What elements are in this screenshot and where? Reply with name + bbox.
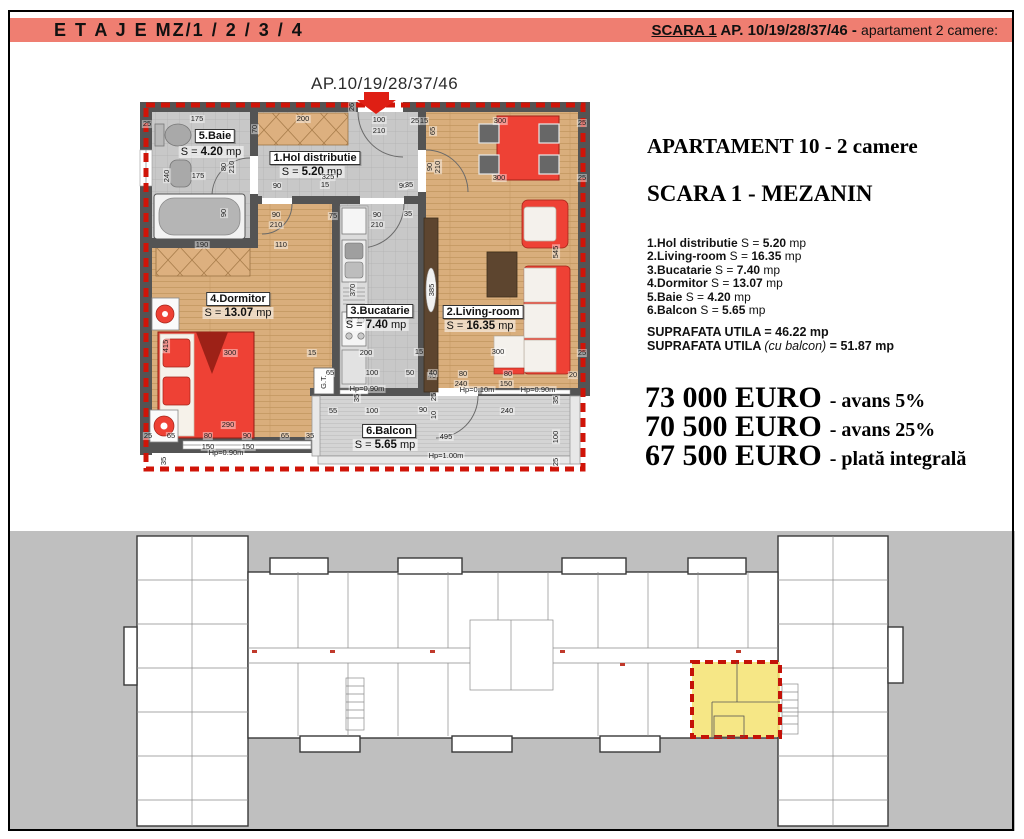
site-plan-drawing <box>9 531 1015 831</box>
dimension-label: 55 <box>328 407 338 415</box>
header-bar: E T A J E MZ/1 / 2 / 3 / 4 SCARA 1 AP. 1… <box>10 18 1012 42</box>
header-right-title: SCARA 1 AP. 10/19/28/37/46 - apartament … <box>651 22 998 39</box>
price-note: - avans 5% <box>830 390 926 413</box>
room-label: 3.Bucatarie <box>346 304 413 318</box>
surface-total: SUPRAFATA UTILA (cu balcon) = 51.87 mp <box>647 339 1005 353</box>
dimension-label: 80 <box>203 432 213 440</box>
brochure-page: E T A J E MZ/1 / 2 / 3 / 4 SCARA 1 AP. 1… <box>0 0 1024 839</box>
dimension-label: 200 <box>359 349 374 357</box>
price-note: - plată integrală <box>830 448 967 471</box>
apartment-title: APARTAMENT 10 - 2 camere <box>647 134 1005 159</box>
header-left-title: E T A J E MZ/1 / 2 / 3 / 4 <box>54 20 304 41</box>
dimension-label: 50 <box>405 369 415 377</box>
dimension-label: 300 <box>492 174 507 182</box>
price-row: 67 500 EURO- plată integrală <box>645 439 1005 468</box>
surface-totals: SUPRAFATA UTILA = 46.22 mpSUPRAFATA UTIL… <box>647 325 1005 353</box>
highlighted-apartment <box>692 662 780 737</box>
dimension-label: 90 <box>271 211 281 219</box>
dimension-label: 100 <box>365 407 380 415</box>
dimension-label: 150 <box>499 380 514 388</box>
dimension-label: 385 <box>428 283 436 298</box>
dimension-label: Hp=0.90m <box>208 449 245 457</box>
dimension-label: 300 <box>493 117 508 125</box>
dimension-label: 75 <box>328 212 338 220</box>
dimension-label: 80 <box>458 370 468 378</box>
dimension-label: 90 <box>272 182 282 190</box>
dimension-label: 100 <box>552 430 560 445</box>
dimension-label: 15 <box>419 117 429 125</box>
room-label: 5.Baie <box>195 129 235 143</box>
dimension-label: 210 <box>269 221 284 229</box>
dimension-label: 40 <box>428 369 438 377</box>
price-amount: 67 500 EURO <box>645 439 822 473</box>
dimension-label: 35 <box>160 456 168 466</box>
dimension-label: 35 <box>552 395 560 405</box>
dimension-label: 370 <box>349 283 357 298</box>
panel-room-item: 4.Dormitor S = 13.07 mp <box>647 277 1005 290</box>
dimension-label: 240 <box>163 169 171 184</box>
room-label: 4.Dormitor <box>206 292 270 306</box>
dimension-label: 100 <box>365 369 380 377</box>
room-label: 1.Hol distributie <box>269 151 360 165</box>
panel-room-item: 6.Balcon S = 5.65 mp <box>647 304 1005 317</box>
price-row: 70 500 EURO- avans 25% <box>645 410 1005 439</box>
dimension-label: 545 <box>552 245 560 260</box>
dimension-label: 15 <box>414 348 424 356</box>
room-area-label: S = 5.65 mp <box>353 439 418 451</box>
room-area-label: S = 7.40 mp <box>344 319 409 331</box>
dimension-label: Hp=1.00m <box>428 452 465 460</box>
dimension-label: 35 <box>353 393 361 403</box>
dimension-label: 300 <box>223 349 238 357</box>
dimension-label: 65 <box>280 432 290 440</box>
room-label: 6.Balcon <box>362 424 416 438</box>
room-area-label: S = 4.20 mp <box>179 146 244 158</box>
dimension-label: 495 <box>439 433 454 441</box>
dimension-label: 65 <box>166 432 176 440</box>
dormitor-wardrobe <box>156 246 250 276</box>
panel-room-item: 5.Baie S = 4.20 mp <box>647 291 1005 304</box>
dimension-label: 210 <box>372 127 387 135</box>
dimension-label: 90 <box>220 208 228 218</box>
room-label: 2.Living-room <box>443 305 524 319</box>
info-panel: APARTAMENT 10 - 2 camere SCARA 1 - MEZAN… <box>645 120 1005 468</box>
dimension-label: 35 <box>404 181 414 189</box>
dimension-label: 25 <box>552 457 560 467</box>
dimension-label: 25 <box>577 174 587 182</box>
dimension-label: 190 <box>195 241 210 249</box>
dimension-label: 290 <box>221 421 236 429</box>
scara-subtitle: SCARA 1 - MEZANIN <box>647 181 1005 207</box>
dimension-label: 415 <box>162 339 170 354</box>
dimension-label: 110 <box>274 241 288 249</box>
dimension-label: 90 <box>242 432 252 440</box>
header-scara-label: SCARA 1 <box>651 22 716 39</box>
room-list: 1.Hol distributie S = 5.20 mp2.Living-ro… <box>647 237 1005 317</box>
price-list: 73 000 EURO- avans 5%70 500 EURO- avans … <box>645 381 1005 468</box>
dimension-label: 35 <box>305 432 315 440</box>
dimension-label: 26 <box>348 102 356 112</box>
surface-total: SUPRAFATA UTILA = 46.22 mp <box>647 325 1005 339</box>
dimension-label: 35 <box>403 210 413 218</box>
dimension-label: G.T. <box>320 374 328 390</box>
dimension-label: 25 <box>430 392 438 402</box>
header-ap-label: AP. 10/19/28/37/46 - <box>717 22 861 39</box>
price-note: - avans 25% <box>830 419 936 442</box>
dimension-label: 200 <box>296 115 311 123</box>
room-area-label: S = 16.35 mp <box>445 320 516 332</box>
dimension-label: 25 <box>143 432 153 440</box>
dimension-label: 65 <box>429 126 437 136</box>
dimension-label: 90 <box>372 211 382 219</box>
dimension-label: 25 <box>142 120 152 128</box>
dimension-label: 210 <box>228 160 236 175</box>
dimension-label: 240 <box>500 407 515 415</box>
dimension-label: 25 <box>577 349 587 357</box>
dimension-label: 80 <box>503 370 513 378</box>
panel-room-item: 2.Living-room S = 16.35 mp <box>647 250 1005 263</box>
dimension-label: 210 <box>370 221 385 229</box>
panel-room-item: 1.Hol distributie S = 5.20 mp <box>647 237 1005 250</box>
dimension-label: 70 <box>251 124 259 134</box>
room-area-label: S = 13.07 mp <box>203 307 274 319</box>
dimension-label: 15 <box>320 181 330 189</box>
dimension-label: 25 <box>577 119 587 127</box>
dimension-label: Hp=0.90m <box>349 385 386 393</box>
dimension-label: 10 <box>430 410 438 420</box>
dimension-label: 300 <box>491 348 506 356</box>
dimension-label: 175 <box>190 115 205 123</box>
dimension-label: 90 <box>418 406 428 414</box>
panel-room-item: 3.Bucatarie S = 7.40 mp <box>647 264 1005 277</box>
dimension-label: 175 <box>191 172 206 180</box>
header-type-label: apartament 2 camere: <box>861 22 998 38</box>
dimension-label: 15 <box>307 349 317 357</box>
dimension-label: Hp=0.90m <box>520 386 557 394</box>
dimension-label: 20 <box>568 371 578 379</box>
dimension-label: Hp=0.10m <box>459 386 496 394</box>
plan-title: AP.10/19/28/37/46 <box>311 74 458 94</box>
dimension-label: 100 <box>372 116 387 124</box>
price-row: 73 000 EURO- avans 5% <box>645 381 1005 410</box>
dimension-label: 210 <box>434 160 442 175</box>
